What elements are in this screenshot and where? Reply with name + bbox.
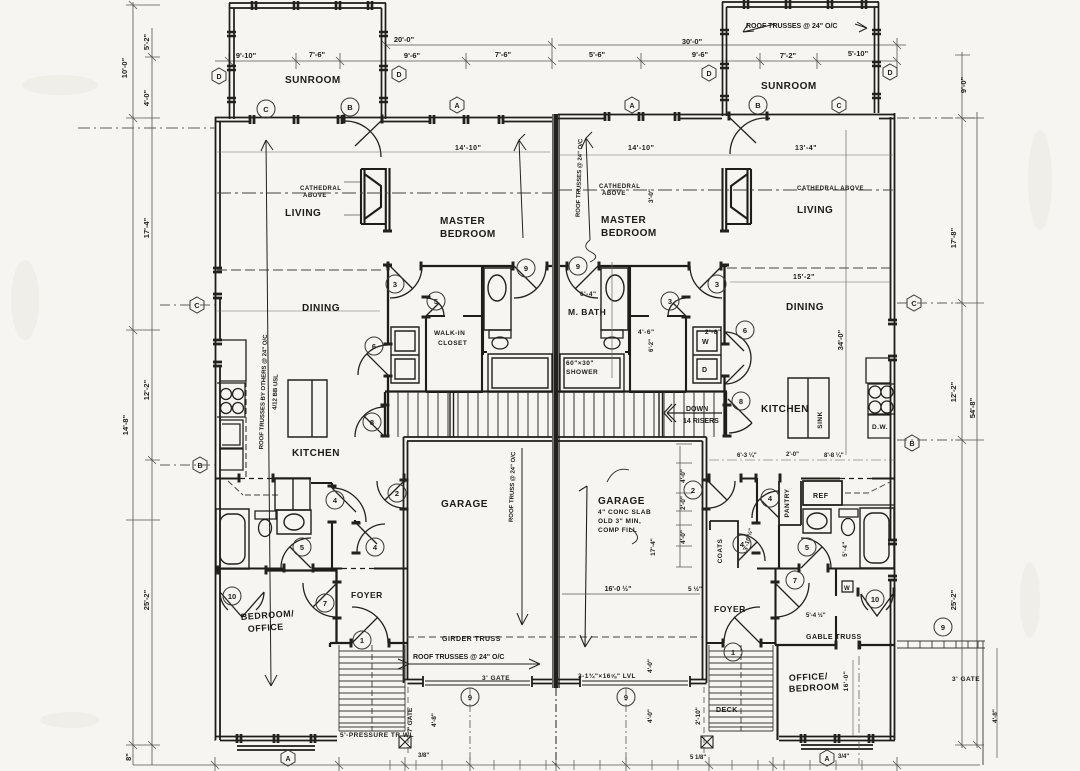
svg-text:7'-6": 7'-6" bbox=[495, 50, 512, 59]
svg-text:SUNROOM: SUNROOM bbox=[761, 81, 817, 92]
svg-text:CATHEDRAL: CATHEDRAL bbox=[599, 184, 640, 190]
svg-text:BEDROOM: BEDROOM bbox=[601, 228, 657, 239]
svg-text:7'-2": 7'-2" bbox=[780, 51, 797, 60]
svg-text:2: 2 bbox=[691, 486, 695, 495]
svg-text:16'-0": 16'-0" bbox=[843, 671, 850, 692]
svg-text:8": 8" bbox=[124, 753, 133, 761]
svg-text:OFFICE/: OFFICE/ bbox=[789, 671, 828, 683]
svg-text:W: W bbox=[702, 339, 709, 346]
svg-text:20'-0": 20'-0" bbox=[394, 35, 415, 44]
svg-text:25'-2": 25'-2" bbox=[142, 589, 151, 610]
svg-text:16'-0 ½": 16'-0 ½" bbox=[605, 585, 632, 593]
svg-text:A: A bbox=[285, 756, 290, 763]
svg-text:4'-0": 4'-0" bbox=[142, 89, 151, 106]
svg-text:17'-8": 17'-8" bbox=[949, 227, 958, 248]
svg-text:3: 3 bbox=[715, 280, 719, 289]
svg-text:14'-10": 14'-10" bbox=[628, 145, 654, 152]
svg-text:15'-2": 15'-2" bbox=[793, 274, 815, 281]
svg-text:4'-0": 4'-0" bbox=[647, 659, 654, 673]
svg-text:3/8": 3/8" bbox=[418, 753, 429, 759]
svg-text:5 1/8": 5 1/8" bbox=[690, 755, 706, 761]
svg-text:2'-10": 2'-10" bbox=[695, 707, 702, 725]
svg-text:4'-6": 4'-6" bbox=[638, 329, 655, 336]
svg-text:17'-4": 17'-4" bbox=[650, 538, 657, 556]
svg-text:4'-0": 4'-0" bbox=[680, 469, 687, 483]
svg-text:D.W.: D.W. bbox=[872, 424, 888, 431]
svg-text:A: A bbox=[629, 103, 634, 110]
svg-text:CATHEDRAL ABOVE: CATHEDRAL ABOVE bbox=[797, 186, 864, 192]
svg-text:5: 5 bbox=[805, 543, 809, 552]
svg-text:1: 1 bbox=[360, 636, 364, 645]
svg-text:LIVING: LIVING bbox=[797, 205, 833, 216]
svg-text:4" CONC SLAB: 4" CONC SLAB bbox=[598, 509, 651, 516]
svg-text:C: C bbox=[194, 303, 199, 310]
svg-text:1: 1 bbox=[731, 648, 735, 657]
svg-text:6'-2": 6'-2" bbox=[649, 339, 655, 352]
svg-text:D: D bbox=[702, 367, 708, 374]
svg-text:SUNROOM: SUNROOM bbox=[285, 75, 341, 86]
svg-text:GIRDER TRUSS: GIRDER TRUSS bbox=[442, 636, 501, 643]
svg-text:DINING: DINING bbox=[786, 302, 824, 313]
svg-text:8'-8 ¼": 8'-8 ¼" bbox=[824, 452, 844, 459]
svg-text:5'-2": 5'-2" bbox=[142, 33, 151, 50]
svg-text:10: 10 bbox=[228, 592, 236, 601]
svg-text:25'-2": 25'-2" bbox=[949, 589, 958, 610]
svg-text:C: C bbox=[836, 103, 841, 110]
svg-text:OFFICE: OFFICE bbox=[247, 622, 284, 634]
svg-text:3/4": 3/4" bbox=[838, 754, 849, 760]
svg-text:9'-0": 9'-0" bbox=[959, 76, 968, 93]
svg-text:ROOF TRUSSES @ 24" O/C: ROOF TRUSSES @ 24" O/C bbox=[413, 654, 504, 661]
svg-text:10: 10 bbox=[871, 595, 879, 604]
svg-text:W: W bbox=[844, 586, 850, 592]
svg-text:8: 8 bbox=[370, 418, 374, 427]
svg-text:WALK-IN: WALK-IN bbox=[434, 330, 465, 337]
svg-text:DECK: DECK bbox=[716, 707, 738, 714]
svg-text:A: A bbox=[454, 103, 459, 110]
svg-text:2: 2 bbox=[395, 489, 399, 498]
svg-text:BEDROOM: BEDROOM bbox=[789, 681, 840, 694]
svg-text:4: 4 bbox=[768, 494, 773, 503]
svg-text:5'-4": 5'-4" bbox=[843, 541, 849, 556]
svg-text:14'-10": 14'-10" bbox=[455, 145, 481, 152]
svg-text:C: C bbox=[263, 105, 269, 114]
svg-text:4'-0": 4'-0" bbox=[647, 709, 654, 723]
svg-text:9'-10": 9'-10" bbox=[236, 51, 257, 60]
svg-text:3' GATE: 3' GATE bbox=[482, 675, 510, 682]
svg-text:2'-8": 2'-8" bbox=[705, 329, 722, 336]
svg-text:A: A bbox=[824, 756, 829, 763]
svg-text:8: 8 bbox=[739, 397, 743, 406]
svg-text:9'-6": 9'-6" bbox=[692, 50, 709, 59]
svg-text:14 RISERS: 14 RISERS bbox=[683, 418, 719, 425]
svg-text:5'-4 ½": 5'-4 ½" bbox=[806, 612, 826, 619]
svg-text:3'-0": 3'-0" bbox=[648, 189, 655, 203]
svg-text:4'-8": 4'-8" bbox=[992, 709, 999, 723]
svg-text:FOYER: FOYER bbox=[351, 590, 383, 600]
svg-text:6'-4": 6'-4" bbox=[580, 291, 597, 298]
svg-text:ROOF TRUSSES @ 24" O/C: ROOF TRUSSES @ 24" O/C bbox=[746, 23, 837, 30]
svg-text:4: 4 bbox=[333, 496, 338, 505]
svg-text:4/12 BB USL: 4/12 BB USL bbox=[272, 374, 279, 410]
svg-text:5'-6": 5'-6" bbox=[589, 50, 606, 59]
svg-text:34'-0": 34'-0" bbox=[836, 329, 845, 350]
svg-text:6'-3 ¼": 6'-3 ¼" bbox=[737, 452, 757, 459]
svg-text:DOWN: DOWN bbox=[686, 406, 708, 413]
svg-text:B: B bbox=[197, 463, 202, 470]
svg-text:7: 7 bbox=[793, 576, 797, 585]
svg-text:9: 9 bbox=[524, 264, 528, 273]
svg-text:KITCHEN: KITCHEN bbox=[292, 448, 340, 459]
svg-text:14'-8": 14'-8" bbox=[121, 414, 130, 435]
svg-text:GARAGE: GARAGE bbox=[441, 499, 488, 510]
svg-text:7'-6": 7'-6" bbox=[309, 50, 326, 59]
svg-text:9: 9 bbox=[576, 262, 580, 271]
svg-text:3: 3 bbox=[393, 280, 397, 289]
svg-text:3' GATE: 3' GATE bbox=[952, 676, 980, 683]
svg-text:D: D bbox=[216, 74, 221, 81]
svg-text:GABLE TRUSS: GABLE TRUSS bbox=[806, 634, 862, 641]
svg-text:30'-0": 30'-0" bbox=[682, 37, 703, 46]
svg-text:2'-0": 2'-0" bbox=[786, 452, 799, 458]
svg-text:ROOF TRUSSES @ 24" O/C: ROOF TRUSSES @ 24" O/C bbox=[576, 138, 585, 217]
svg-text:60"×30": 60"×30" bbox=[566, 360, 594, 367]
svg-text:D: D bbox=[887, 70, 892, 77]
svg-text:MASTER: MASTER bbox=[440, 216, 486, 227]
svg-text:5'-10": 5'-10" bbox=[848, 49, 869, 58]
svg-text:KITCHEN: KITCHEN bbox=[761, 404, 809, 415]
svg-text:9'-6": 9'-6" bbox=[404, 51, 421, 60]
svg-text:SINK: SINK bbox=[817, 411, 824, 429]
svg-text:C: C bbox=[911, 301, 916, 308]
svg-text:6: 6 bbox=[743, 326, 747, 335]
svg-text:PANTRY: PANTRY bbox=[784, 488, 791, 517]
svg-text:COATS: COATS bbox=[717, 538, 724, 563]
svg-text:5 ½": 5 ½" bbox=[688, 585, 702, 593]
svg-text:FOYER: FOYER bbox=[714, 604, 746, 614]
svg-text:13'-4": 13'-4" bbox=[795, 145, 817, 152]
svg-text:10'-0": 10'-0" bbox=[120, 57, 129, 78]
svg-text:4'-0": 4'-0" bbox=[680, 530, 687, 544]
svg-text:3: 3 bbox=[668, 297, 672, 306]
svg-text:SHOWER: SHOWER bbox=[566, 369, 598, 376]
svg-text:GARAGE: GARAGE bbox=[598, 496, 645, 507]
svg-text:ROOF TRUSS @ 24" O/C: ROOF TRUSS @ 24" O/C bbox=[509, 451, 517, 522]
svg-text:DINING: DINING bbox=[302, 303, 340, 314]
svg-text:ROOF TRUSSES BY OTHERS @ 24" O: ROOF TRUSSES BY OTHERS @ 24" O/C bbox=[259, 334, 269, 450]
svg-text:12'-2": 12'-2" bbox=[142, 379, 151, 400]
svg-text:B: B bbox=[347, 103, 353, 112]
svg-text:D: D bbox=[706, 71, 711, 78]
svg-text:CLOSET: CLOSET bbox=[438, 340, 467, 347]
svg-text:ABOVE: ABOVE bbox=[602, 191, 626, 197]
svg-text:54'-8": 54'-8" bbox=[968, 397, 977, 418]
svg-text:LIVING: LIVING bbox=[285, 208, 321, 219]
svg-text:CATHEDRAL: CATHEDRAL bbox=[300, 186, 341, 192]
svg-text:REF: REF bbox=[813, 493, 829, 500]
svg-text:B: B bbox=[755, 101, 761, 110]
svg-text:OLD 3" MIN,: OLD 3" MIN, bbox=[598, 518, 641, 525]
svg-text:COMP FILL: COMP FILL bbox=[598, 527, 637, 534]
svg-text:2'-0": 2'-0" bbox=[680, 496, 687, 510]
svg-text:3-1¾"×16⅝" LVL: 3-1¾"×16⅝" LVL bbox=[578, 672, 636, 680]
svg-text:17'-4": 17'-4" bbox=[142, 217, 151, 238]
svg-text:6: 6 bbox=[372, 342, 376, 351]
svg-text:7: 7 bbox=[323, 599, 327, 608]
svg-text:B: B bbox=[909, 441, 914, 448]
svg-text:M. BATH: M. BATH bbox=[568, 307, 606, 317]
svg-text:ABOVE: ABOVE bbox=[303, 193, 327, 199]
svg-text:BEDROOM: BEDROOM bbox=[440, 229, 496, 240]
svg-text:5: 5 bbox=[434, 297, 438, 306]
svg-text:12'-2": 12'-2" bbox=[949, 381, 958, 402]
svg-text:D: D bbox=[396, 72, 401, 79]
svg-text:5: 5 bbox=[300, 543, 304, 552]
svg-text:MASTER: MASTER bbox=[601, 215, 647, 226]
svg-text:4'-8": 4'-8" bbox=[431, 713, 438, 727]
svg-text:9: 9 bbox=[941, 623, 945, 632]
svg-text:7' GATE: 7' GATE bbox=[407, 707, 414, 732]
svg-text:4: 4 bbox=[373, 543, 378, 552]
